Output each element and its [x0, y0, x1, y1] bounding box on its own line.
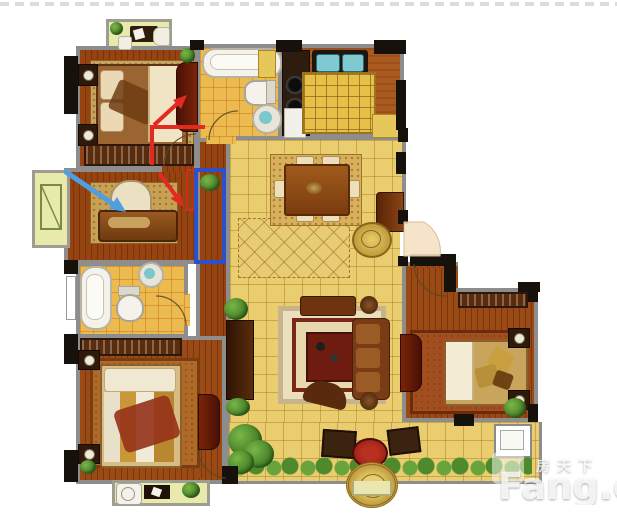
ac-unit-outline-icon — [40, 184, 62, 230]
side-table-icon — [360, 392, 378, 410]
wall-pier — [444, 254, 456, 292]
washbasin-bowl — [259, 111, 272, 124]
plant-icon — [226, 398, 250, 416]
ac-outdoor-unit-inner — [500, 430, 524, 450]
sink-icon — [316, 54, 340, 72]
bath-cabinet-icon — [258, 50, 276, 78]
teaware-icon — [330, 354, 338, 362]
table-centerpiece — [306, 182, 322, 194]
wall-pier — [396, 80, 406, 130]
plant-icon — [110, 22, 123, 35]
wall-pier — [528, 286, 538, 302]
window-icon — [66, 276, 76, 320]
bathtub-inner — [86, 274, 104, 320]
wardrobe-icon — [176, 62, 198, 132]
wall-pier — [190, 40, 204, 50]
floor-plan-image: 房天下 Fang.c — [0, 0, 617, 521]
tv-cabinet-icon — [226, 320, 254, 400]
door-gap — [206, 136, 236, 144]
nightstand-icon — [78, 350, 100, 370]
wall-pier — [528, 404, 538, 422]
hall-carpet — [238, 218, 350, 278]
chair-icon — [153, 27, 170, 46]
closet-icon — [458, 292, 528, 308]
toilet-icon — [116, 294, 144, 322]
wall-pier — [222, 466, 238, 484]
sofa-cushion — [356, 372, 380, 392]
plant-icon — [182, 482, 200, 498]
dresser-icon — [198, 394, 220, 450]
plant-icon — [180, 48, 195, 63]
pillow-icon — [104, 368, 176, 392]
wall-pier — [398, 210, 408, 224]
bench-sofa-icon — [300, 296, 356, 316]
wall-pier — [454, 414, 474, 426]
washer-door — [121, 487, 135, 501]
sink-icon — [342, 54, 364, 72]
plant-icon — [224, 298, 248, 320]
dresser-icon — [400, 334, 422, 392]
sofa-cushion — [356, 324, 380, 344]
round-entry-table-ring — [361, 230, 381, 248]
watermark-site-name-en: Fang.c — [498, 468, 617, 505]
bed-sheet — [446, 342, 474, 400]
wall-pier — [398, 128, 408, 142]
wall-pier — [374, 40, 406, 54]
wall-pier — [64, 260, 78, 274]
wall-pier — [64, 56, 78, 114]
wall-pier — [64, 334, 78, 364]
teaware-icon — [316, 342, 325, 351]
plant-icon — [200, 174, 220, 191]
nightstand-icon — [78, 124, 98, 146]
chair-icon — [118, 36, 132, 50]
sofa-cushion — [356, 348, 380, 368]
entry-door-swing — [404, 222, 440, 256]
terrace-step — [352, 481, 392, 496]
jpeg-artifact-dashes — [0, 2, 617, 6]
kitchen-island — [302, 72, 376, 134]
closet-icon — [84, 144, 194, 166]
plant-icon — [504, 398, 526, 418]
nightstand-icon — [78, 64, 98, 86]
wall-pier — [396, 152, 406, 174]
toilet-tank — [266, 80, 276, 104]
wall-pier — [276, 40, 302, 52]
wall-pier — [64, 450, 78, 482]
washbasin-bowl — [144, 268, 155, 279]
plant-icon — [80, 460, 96, 474]
side-table-icon — [360, 296, 378, 314]
nightstand-icon — [508, 328, 530, 348]
wall-pier — [398, 256, 408, 266]
door-gap — [184, 294, 190, 326]
terrace-chair-icon — [387, 426, 422, 456]
desk-detail — [108, 217, 150, 228]
